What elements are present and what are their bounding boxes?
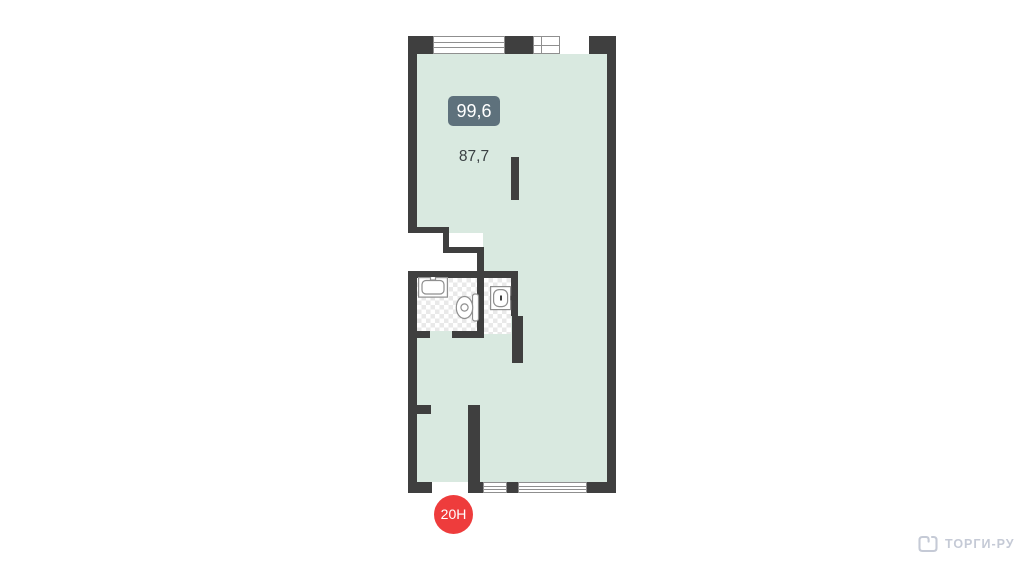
wall-left-bathroom	[408, 271, 417, 338]
site-logo: ТОРГИ-РУ	[916, 533, 1015, 555]
wall-bottom-mid-a	[468, 482, 483, 493]
unit-number-marker: 20Н	[434, 495, 473, 534]
wall-tick-left	[417, 405, 431, 414]
wall-right	[607, 36, 616, 493]
wall-left-upper	[408, 36, 417, 233]
window-top-1	[433, 36, 505, 54]
floor-plan[interactable]: 99,6 87,7 20Н	[0, 0, 1024, 569]
wall-bathroom-bottom-a	[408, 331, 430, 338]
window-bottom-1	[483, 482, 507, 493]
page: 99,6 87,7 20Н ТОРГИ-РУ	[0, 0, 1024, 569]
sink-icon	[418, 277, 448, 298]
logo-text: ТОРГИ-РУ	[945, 537, 1015, 551]
toilet-icon	[455, 292, 480, 323]
logo-house-icon	[916, 534, 940, 554]
washbasin-icon	[489, 285, 516, 312]
wall-left-lower	[408, 338, 417, 493]
wall-bottom-mid-b	[507, 482, 518, 493]
wall-vestibule	[468, 405, 480, 482]
total-area-badge: 99,6	[448, 96, 500, 126]
wall-bottom-corner-right	[587, 482, 616, 493]
wall-top-middle	[505, 36, 533, 54]
room-area-label: 87,7	[444, 148, 504, 166]
wall-bathroom-stub	[512, 316, 523, 363]
wall-partition-upper	[511, 157, 519, 200]
window-bottom-2	[518, 482, 587, 493]
wall-bathroom-bottom-b	[452, 331, 484, 338]
window-top-2	[533, 36, 560, 54]
wall-bottom-corner-left	[408, 482, 432, 493]
